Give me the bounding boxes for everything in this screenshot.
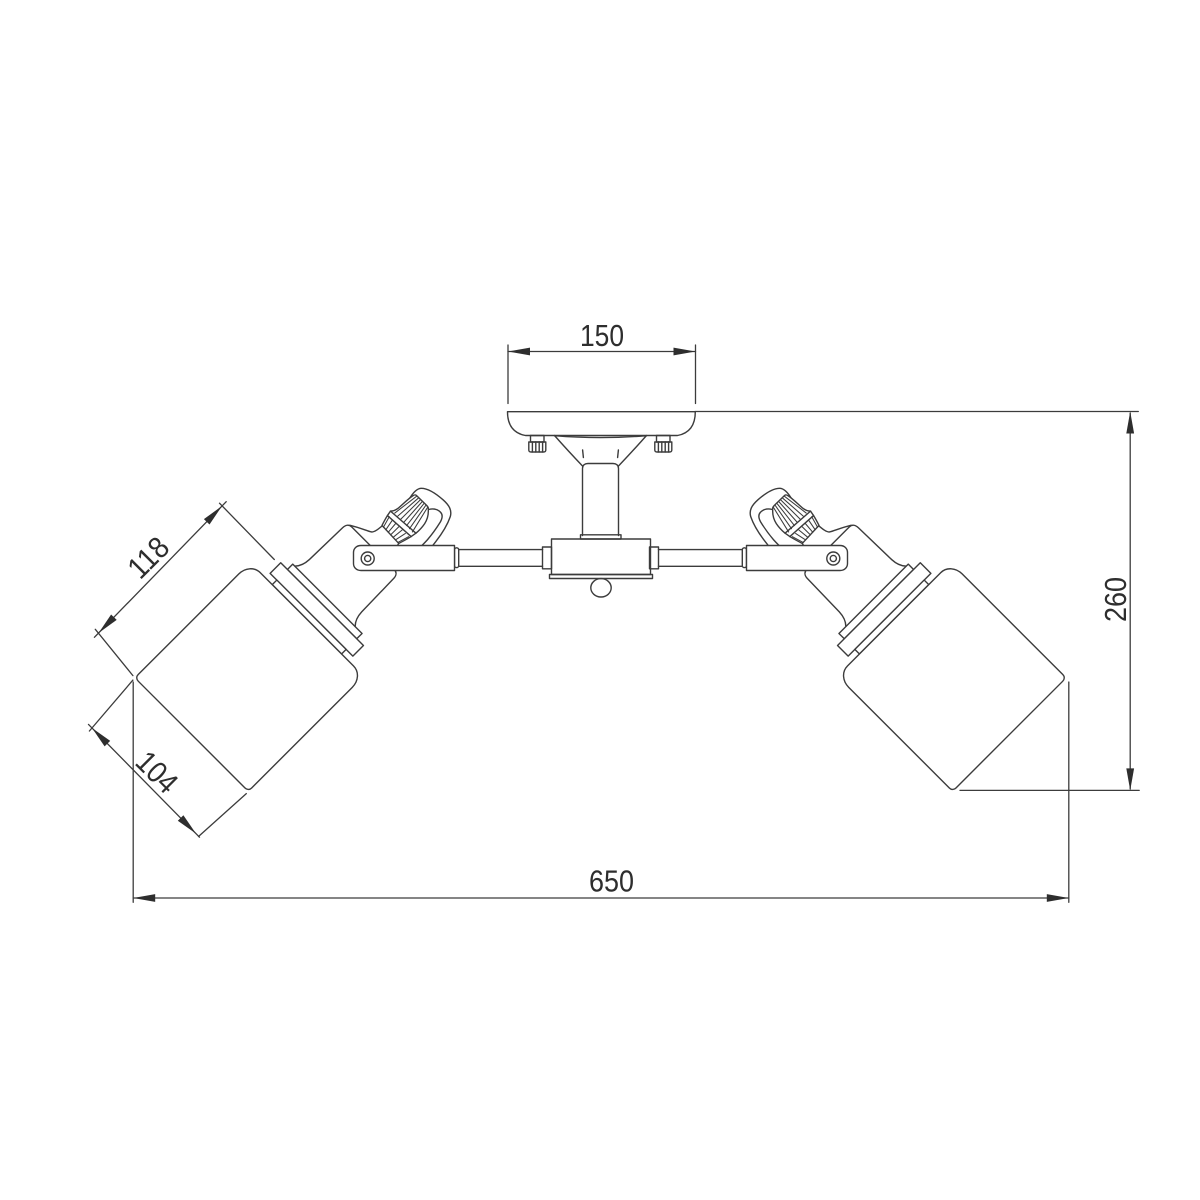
svg-text:150: 150 bbox=[580, 319, 624, 353]
svg-text:650: 650 bbox=[589, 865, 634, 899]
svg-text:260: 260 bbox=[1099, 577, 1133, 622]
svg-text:118: 118 bbox=[121, 530, 176, 585]
svg-text:104: 104 bbox=[129, 744, 185, 800]
